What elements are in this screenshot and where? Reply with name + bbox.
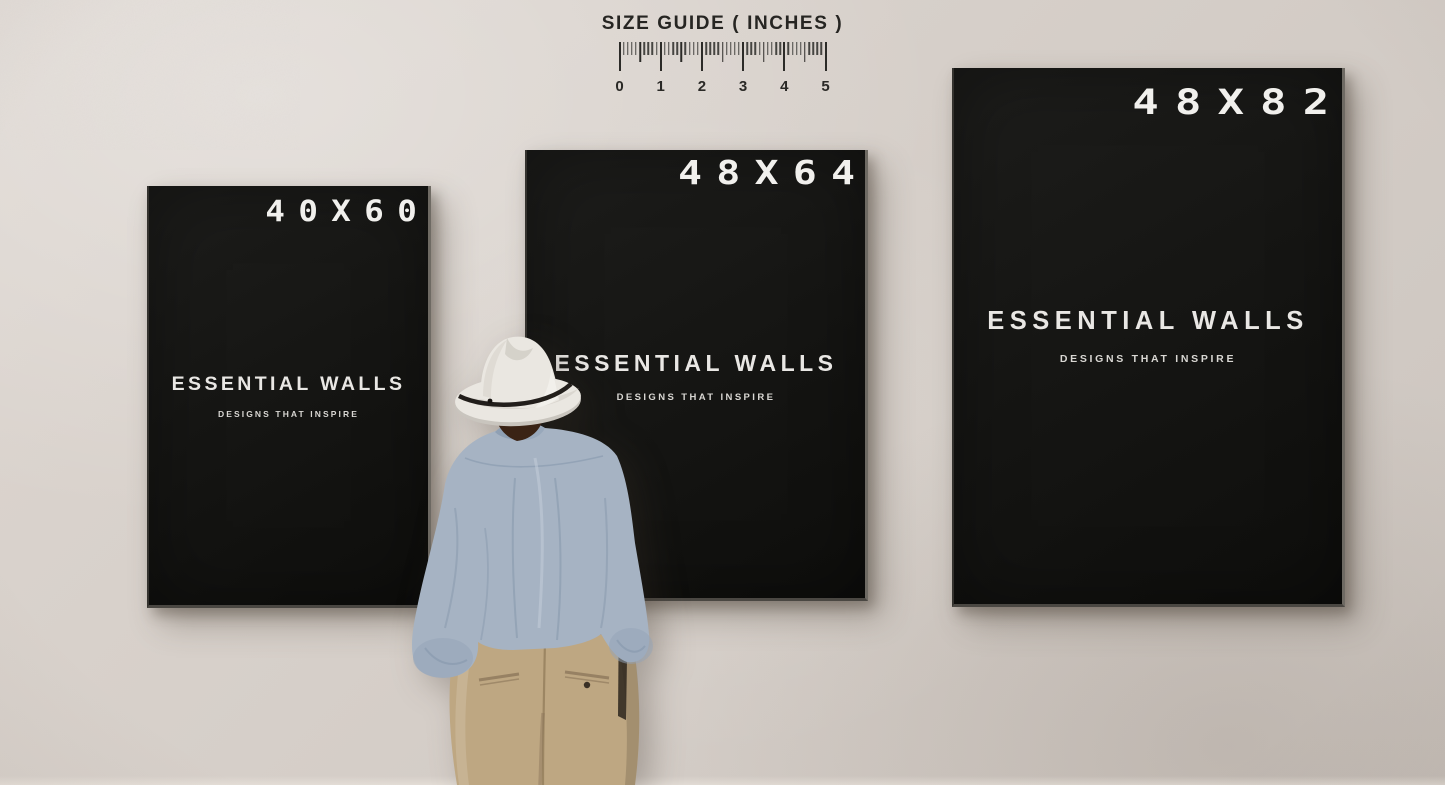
ruler-tick [672, 42, 674, 55]
ruler-tick [788, 42, 790, 55]
ruler-tick [821, 42, 823, 55]
poster-brand-block: ESSENTIAL WALLS DESIGNS THAT INSPIRE [954, 307, 1342, 365]
ruler-ticks [620, 42, 826, 71]
standing-man-figure [395, 328, 665, 785]
ruler-tick [759, 42, 761, 55]
poster-48x82: 48X82 ESSENTIAL WALLS DESIGNS THAT INSPI… [952, 68, 1345, 607]
ruler-tick [804, 42, 806, 62]
ruler-tick [689, 42, 691, 55]
ruler-tick [771, 42, 773, 55]
poster-size-label: 48X64 [678, 153, 869, 192]
ruler-tick [623, 42, 625, 55]
ruler-tick [779, 42, 781, 55]
ruler-tick [685, 42, 687, 55]
ruler-tick [808, 42, 810, 55]
ruler-tick [648, 42, 650, 55]
ruler-tick [718, 42, 720, 55]
ruler-tick [783, 42, 785, 71]
ruler-number: 4 [780, 78, 788, 95]
ruler-tick [619, 42, 621, 71]
ruler-tick [652, 42, 654, 55]
ruler-tick [701, 42, 703, 71]
ruler-tick [681, 42, 683, 62]
ruler-tick [664, 42, 666, 55]
poster-brand: ESSENTIAL WALLS [954, 307, 1342, 336]
poster-brand: ESSENTIAL WALLS [149, 373, 428, 396]
pocket-button [584, 682, 590, 688]
ruler-tick [643, 42, 645, 55]
ruler-tick [693, 42, 695, 55]
ruler-tick [668, 42, 670, 55]
ruler-tick [734, 42, 736, 55]
ruler-tick [763, 42, 765, 62]
poster-size-label: 40X60 [265, 194, 430, 228]
ruler-tick [817, 42, 819, 55]
ruler-tick [792, 42, 794, 55]
ruler-number: 3 [739, 78, 747, 95]
ruler-tick [755, 42, 757, 55]
ruler-number: 1 [657, 78, 665, 95]
ruler-tick [627, 42, 629, 55]
ruler-tick [796, 42, 798, 55]
size-guide-title: SIZE GUIDE ( INCHES ) [0, 13, 1445, 35]
ruler-tick [714, 42, 716, 55]
ruler: 0 1 2 3 4 5 [620, 42, 826, 96]
ruler-tick [742, 42, 744, 71]
ruler-tick [800, 42, 802, 55]
ruler-number: 2 [698, 78, 706, 95]
ruler-tick [635, 42, 637, 55]
ruler-tick [639, 42, 641, 62]
size-guide: SIZE GUIDE ( INCHES ) 0 1 2 3 4 5 [0, 13, 1445, 96]
ruler-tick [812, 42, 814, 55]
scene: SIZE GUIDE ( INCHES ) 0 1 2 3 4 5 40X60 … [0, 0, 1445, 785]
ruler-tick [722, 42, 724, 62]
ruler-tick [730, 42, 732, 55]
ruler-tick [709, 42, 711, 55]
ruler-numbers: 0 1 2 3 4 5 [620, 78, 826, 96]
poster-brand-block: ESSENTIAL WALLS DESIGNS THAT INSPIRE [149, 373, 428, 419]
ruler-tick [697, 42, 699, 55]
ruler-tick [631, 42, 633, 55]
ruler-tick [825, 42, 827, 71]
ruler-tick [746, 42, 748, 55]
ruler-tick [738, 42, 740, 55]
ruler-tick [726, 42, 728, 55]
fedora-hat [454, 337, 582, 430]
ruler-tick [705, 42, 707, 55]
ruler-tick [676, 42, 678, 55]
ruler-tick [660, 42, 662, 71]
ruler-number: 5 [821, 78, 829, 95]
shirt [412, 421, 653, 678]
ruler-tick [775, 42, 777, 55]
poster-tagline: DESIGNS THAT INSPIRE [149, 409, 428, 419]
ruler-tick [751, 42, 753, 55]
poster-40x60: 40X60 ESSENTIAL WALLS DESIGNS THAT INSPI… [147, 186, 431, 608]
ruler-tick [767, 42, 769, 55]
pants [450, 633, 640, 785]
poster-tagline: DESIGNS THAT INSPIRE [954, 353, 1342, 365]
ruler-tick [656, 42, 658, 55]
ruler-number: 0 [615, 78, 623, 95]
floor-hint [0, 776, 1445, 785]
